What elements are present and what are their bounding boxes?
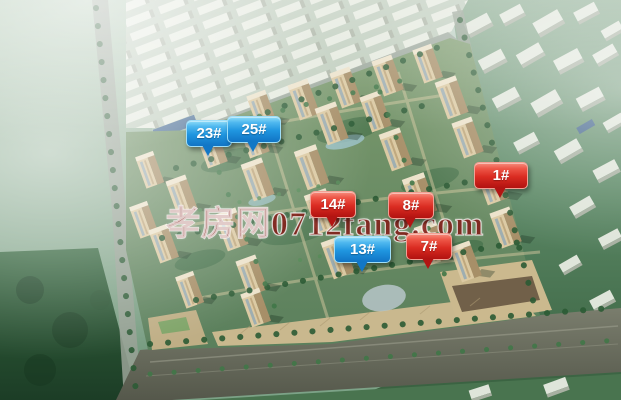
building-pin-23[interactable]: 23# bbox=[186, 120, 232, 147]
building-pin-14[interactable]: 14# bbox=[310, 191, 356, 218]
building-pin-8[interactable]: 8# bbox=[388, 192, 434, 219]
pin-label: 14# bbox=[320, 196, 345, 213]
pin-label: 8# bbox=[403, 197, 420, 214]
aerial-view-canvas: 孝房网0712fang.com 23# 25# 14# 8# 1# 13# 7# bbox=[0, 0, 621, 400]
building-pin-7[interactable]: 7# bbox=[406, 233, 452, 260]
building-pin-25[interactable]: 25# bbox=[227, 116, 281, 143]
pin-label: 1# bbox=[493, 167, 510, 184]
pin-label: 23# bbox=[196, 125, 221, 142]
pin-label: 13# bbox=[350, 241, 375, 258]
pin-label: 7# bbox=[421, 238, 438, 255]
building-pin-13[interactable]: 13# bbox=[334, 236, 391, 263]
building-pin-1[interactable]: 1# bbox=[474, 162, 528, 189]
pin-label: 25# bbox=[241, 121, 266, 138]
